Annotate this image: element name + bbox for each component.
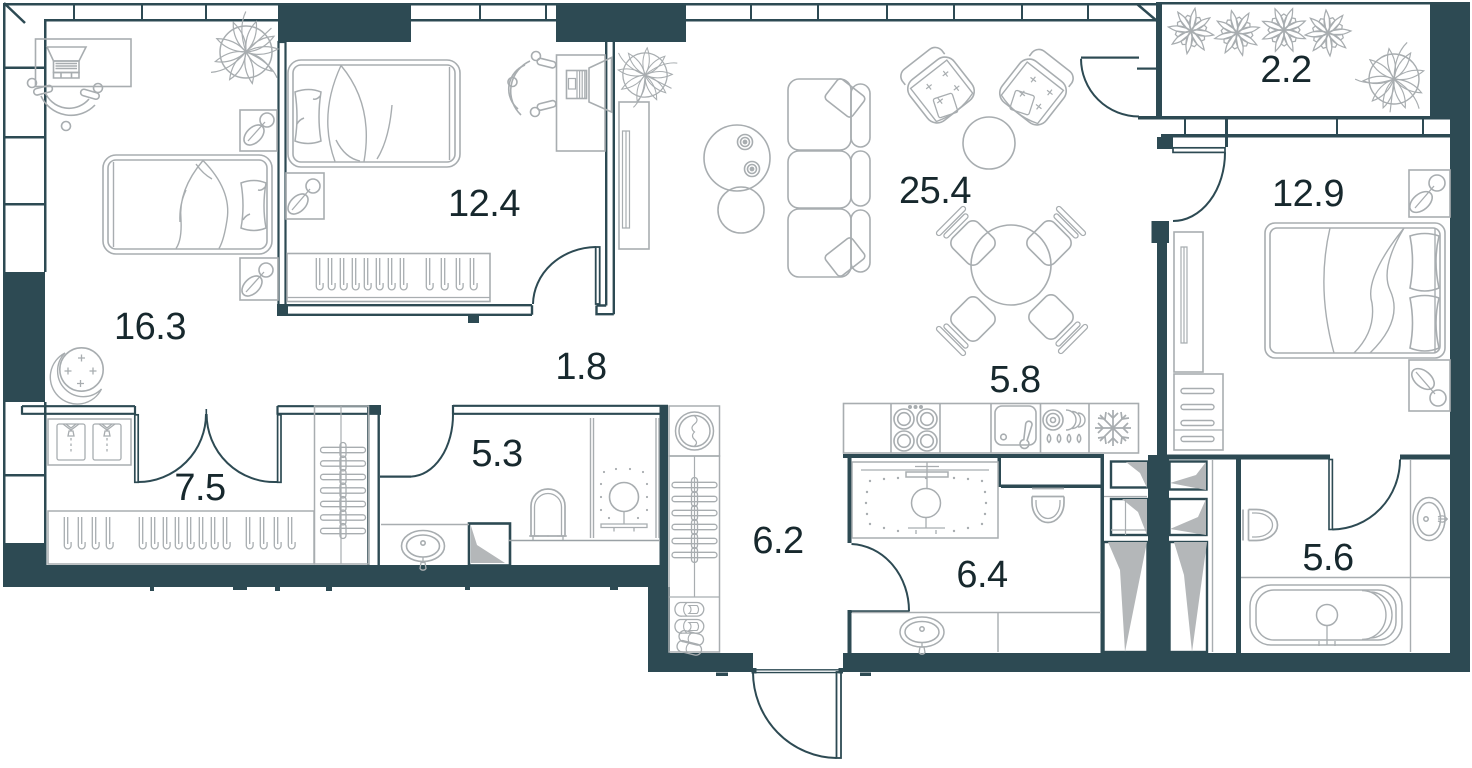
svg-text:6.2: 6.2 (752, 520, 803, 562)
svg-text:12.4: 12.4 (448, 183, 520, 225)
svg-text:6.4: 6.4 (956, 554, 1008, 596)
svg-text:5.8: 5.8 (989, 359, 1040, 401)
svg-text:25.4: 25.4 (899, 170, 971, 212)
svg-text:2.2: 2.2 (1260, 49, 1311, 91)
svg-text:16.3: 16.3 (114, 306, 186, 348)
svg-text:7.5: 7.5 (174, 467, 225, 509)
svg-text:12.9: 12.9 (1272, 173, 1344, 215)
svg-text:5.3: 5.3 (471, 433, 522, 475)
svg-text:5.6: 5.6 (1302, 537, 1353, 579)
svg-text:1.8: 1.8 (555, 346, 606, 388)
